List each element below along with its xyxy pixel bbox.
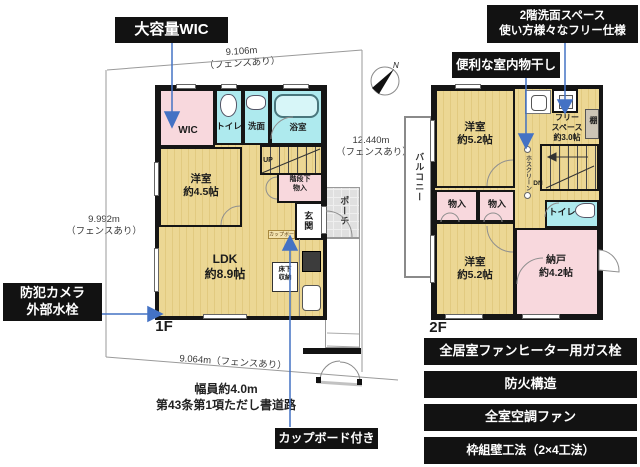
label-1f-up: UP <box>258 157 278 166</box>
window-1f-top3 <box>283 84 309 89</box>
window-1f-left2 <box>154 248 159 292</box>
kitchen-sink-icon <box>302 285 321 311</box>
cupboard-tag: カップボード <box>268 230 295 239</box>
feature-box-construction-text: 枠組壁工法（2×4工法） <box>466 443 594 459</box>
label-2f-closet2: 物入 <box>481 199 513 210</box>
label-2f-bedroom2-name: 洋室 <box>445 256 505 269</box>
stairs-2f <box>540 144 599 191</box>
label-2f-freespace-1: フリー <box>538 113 596 123</box>
counter-2f-sink <box>531 95 547 111</box>
label-1f-wic: WIC <box>165 125 211 138</box>
label-floor1: 1F <box>148 318 180 337</box>
room-1f-wic <box>159 89 215 147</box>
label-1f-ldk-name: LDK <box>185 252 265 267</box>
label-2f-storage: 納戸 約4.2帖 <box>521 255 591 280</box>
label-porch: ポーチ <box>338 196 349 226</box>
bathtub-icon <box>274 94 319 118</box>
label-2f-bedroom1-size: 約5.2帖 <box>445 134 505 147</box>
measurement-bottom-value: 9.064m（フェンスあり） <box>178 353 289 373</box>
cupboard-tag-label: カップボード <box>269 231 294 239</box>
window-1f-top2 <box>221 84 237 89</box>
label-2f-freespace-2: スペース <box>538 123 596 133</box>
porch-area: ポーチ <box>325 187 360 238</box>
label-2f-toilet: トイレ <box>547 207 577 218</box>
label-2f-bedroom2-size: 約5.2帖 <box>445 269 505 282</box>
label-1f-ldk-size: 約8.9帖 <box>185 267 265 282</box>
window-1f-bottom <box>203 314 247 319</box>
label-1f-ldk: LDK 約8.9帖 <box>185 252 265 282</box>
feature-box-aircon-text: 全室空調ファン <box>485 409 576 426</box>
feature-box-aircon: 全室空調ファン <box>424 404 637 431</box>
measurement-left-note: （フェンスあり） <box>66 226 142 238</box>
measurement-top: 9.106m （フェンスあり） <box>199 43 285 73</box>
label-balcony: バルコニー <box>413 152 424 202</box>
label-floor-storage-1: 床下 <box>274 266 296 274</box>
counter-2f-icon <box>525 90 551 114</box>
label-1f-bedroom: 洋室 約4.5帖 <box>167 173 235 199</box>
label-2f-bedroom1: 洋室 約5.2帖 <box>445 121 505 147</box>
measurement-right-value: 12.440m <box>336 135 406 147</box>
boundary-wall <box>303 348 361 354</box>
label-1f-toilet: トイレ <box>212 121 246 132</box>
callout-cupboard: カップボード付き <box>275 428 378 449</box>
measurement-right-note: （フェンスあり） <box>336 147 406 159</box>
label-2f-freespace-3: 約3.0帖 <box>538 133 596 143</box>
feature-box-fireproof: 防火構造 <box>424 371 637 398</box>
window-2f-left2 <box>430 235 435 283</box>
label-1f-understairs-1: 階段下 <box>280 176 320 185</box>
feature-box-gas-text: 全居室ファンヒーター用ガス栓 <box>439 343 621 360</box>
measurement-right: 12.440m （フェンスあり） <box>336 135 406 160</box>
callout-free-space-line1: 2階洗面スペース <box>520 9 606 24</box>
floorplan-page: 9.106m （フェンスあり） 9.992m （フェンスあり） 12.440m … <box>0 0 640 467</box>
washbasin-icon-1f <box>246 95 266 110</box>
callout-large-wic: 大容量WIC <box>115 17 228 43</box>
window-1f-top1 <box>176 84 196 89</box>
road-note-line1: 幅員約4.0m <box>140 382 312 398</box>
washbasin-2f-icon <box>552 89 578 113</box>
toilet-icon-2f <box>575 203 595 218</box>
measurement-left-value: 9.992m <box>66 214 142 226</box>
callout-indoor-drying-text: 便利な室内物干し <box>456 57 556 73</box>
label-floor-storage-2: 収納 <box>274 274 296 282</box>
callout-security-line1: 防犯カメラ <box>20 285 85 302</box>
callout-security-line2: 外部水栓 <box>26 302 78 319</box>
callout-security: 防犯カメラ 外部水栓 <box>3 283 102 321</box>
label-1f-entrance: 玄関 <box>302 206 313 236</box>
road-note-line2: 第43条第1項ただし書道路 <box>140 398 312 414</box>
feature-box-fireproof-text: 防火構造 <box>504 376 556 393</box>
hosclean-hook2 <box>524 192 531 199</box>
feature-box-construction: 枠組壁工法（2×4工法） <box>424 437 637 464</box>
label-1f-wash: 洗面 <box>243 121 270 132</box>
road-note: 幅員約4.0m 第43条第1項ただし書道路 <box>140 382 312 413</box>
label-2f-bedroom1-name: 洋室 <box>445 121 505 134</box>
label-1f-bedroom-name: 洋室 <box>167 173 235 186</box>
label-floor-storage: 床下 収納 <box>274 266 296 282</box>
label-2f-bedroom2: 洋室 約5.2帖 <box>445 256 505 282</box>
label-2f-dn: DN <box>530 180 546 188</box>
label-1f-understairs-2: 物入 <box>280 185 320 194</box>
balcony-area: バルコニー <box>404 116 432 278</box>
compass-icon: N <box>371 61 399 95</box>
label-1f-bath: 浴室 <box>273 122 323 133</box>
label-1f-understairs: 階段下 物入 <box>280 176 320 194</box>
window-2f-top <box>455 84 481 89</box>
label-2f-storage-name: 納戸 <box>521 255 591 268</box>
label-1f-bedroom-size: 約4.5帖 <box>167 186 235 199</box>
stove-icon <box>302 251 321 272</box>
door-opening-1f-entrance <box>321 206 327 234</box>
window-2f-bottom2 <box>522 314 560 319</box>
approach-path <box>325 238 360 348</box>
window-2f-left1 <box>430 120 435 162</box>
measurement-left: 9.992m （フェンスあり） <box>66 214 142 239</box>
label-floor2: 2F <box>422 319 454 338</box>
kitchen-counter-edge <box>299 239 300 316</box>
hosclean-hook1 <box>524 146 531 153</box>
feature-box-gas: 全居室ファンヒーター用ガス栓 <box>424 338 637 365</box>
measurement-bottom: 9.064m（フェンスあり） <box>178 353 289 373</box>
toilet-icon-1f <box>220 94 237 117</box>
label-2f-storage-size: 約4.2帖 <box>521 268 591 281</box>
label-2f-freespace: フリー スペース 約3.0帖 <box>538 113 596 143</box>
compass-n-label: N <box>393 61 399 70</box>
floor-2f-plan: 棚 ホスクリーン 洋室 約5.2帖 フリー スペース 約3.0帖 DN 物入 物 <box>431 85 603 320</box>
label-2f-closet1: 物入 <box>439 199 475 210</box>
window-1f-left1 <box>154 162 159 196</box>
callout-large-wic-text: 大容量WIC <box>134 20 208 40</box>
callout-free-space: 2階洗面スペース 使い方様々なフリー仕様 <box>487 5 638 43</box>
washbasin-2f-bowl <box>559 95 573 109</box>
callout-indoor-drying: 便利な室内物干し <box>452 52 560 78</box>
gate-icon <box>316 361 362 385</box>
floor-1f-plan: カップボード WIC トイレ 洗面 浴室 UP 洋室 約4.5帖 階段下 物入 … <box>155 85 327 320</box>
callout-cupboard-text: カップボード付き <box>278 431 374 447</box>
callout-free-space-line2: 使い方様々なフリー仕様 <box>499 24 626 39</box>
